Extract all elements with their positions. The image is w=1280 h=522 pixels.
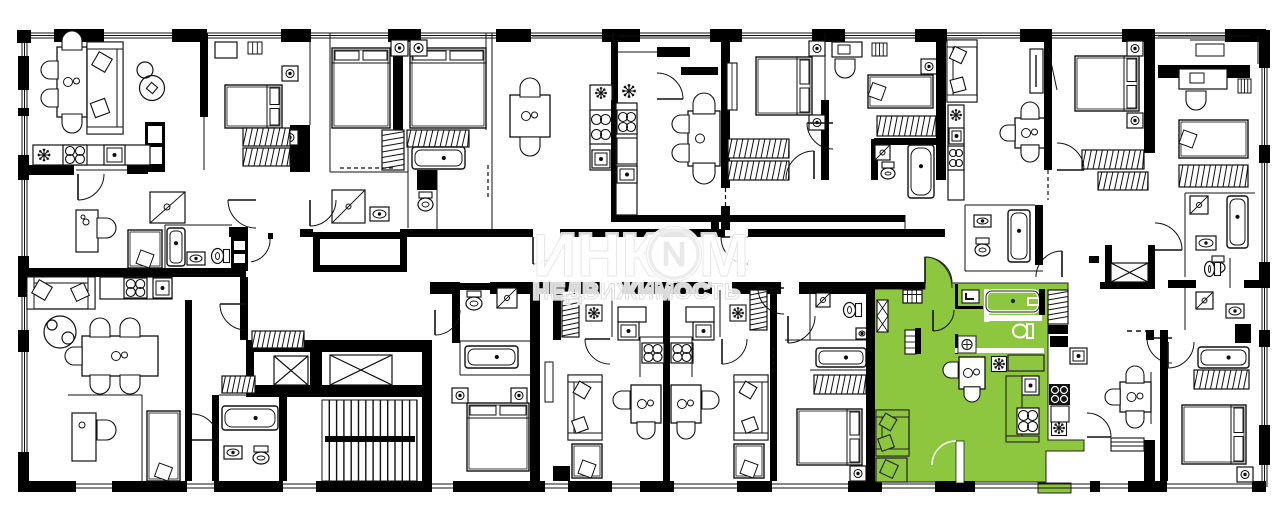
svg-text:НЕДВИЖИМОСТЬ: НЕДВИЖИМОСТЬ — [533, 279, 741, 304]
